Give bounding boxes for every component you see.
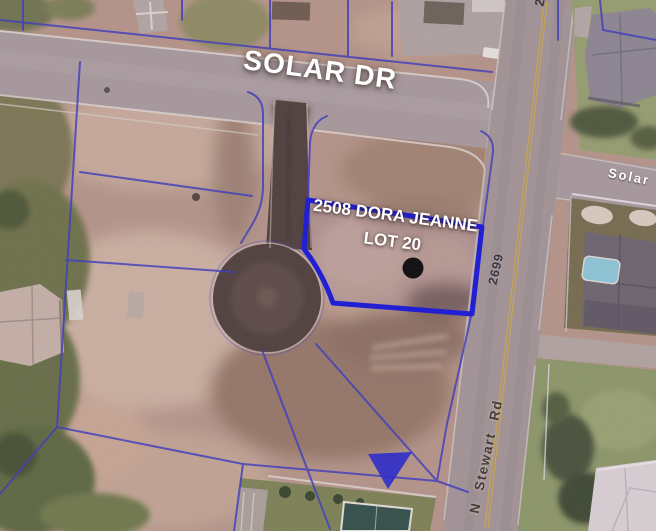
aerial-parcel-map: SOLAR DR 2508 DORA JEANNE LOT 20 Solar 2…	[0, 0, 656, 531]
